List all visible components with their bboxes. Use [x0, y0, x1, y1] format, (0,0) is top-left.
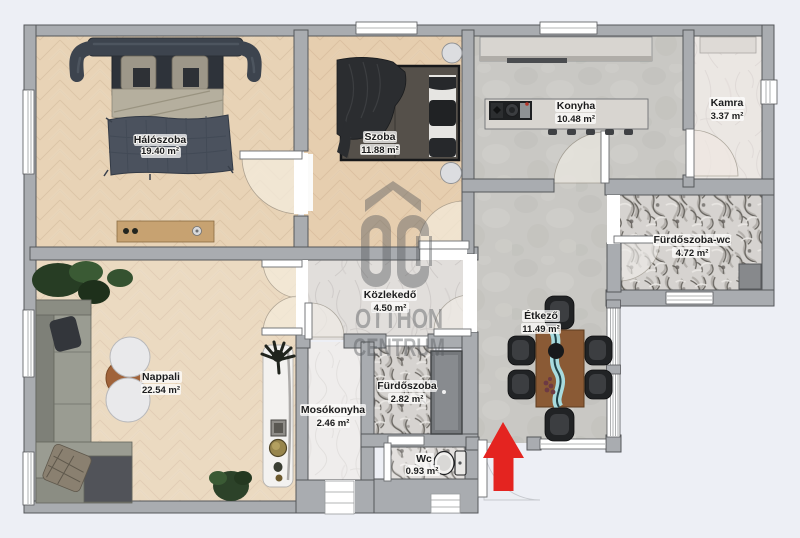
svg-text:19.40 m²: 19.40 m² [141, 146, 179, 157]
svg-text:Wc: Wc [416, 453, 432, 465]
svg-text:2.82 m²: 2.82 m² [391, 394, 424, 405]
svg-text:Szoba: Szoba [365, 131, 396, 143]
svg-text:Kamra: Kamra [711, 97, 744, 109]
svg-text:11.88 m²: 11.88 m² [361, 145, 399, 156]
svg-text:2.46 m²: 2.46 m² [317, 418, 350, 429]
svg-text:Étkező: Étkező [524, 309, 558, 322]
svg-text:Mosókonyha: Mosókonyha [301, 404, 365, 416]
svg-text:CENTRUM: CENTRUM [353, 334, 445, 362]
svg-text:22.54 m²: 22.54 m² [142, 385, 180, 396]
svg-text:4.50 m²: 4.50 m² [374, 303, 407, 314]
svg-text:Konyha: Konyha [557, 100, 596, 112]
svg-text:3.37 m²: 3.37 m² [711, 111, 744, 122]
svg-text:Hálószoba: Hálószoba [134, 134, 187, 146]
svg-text:Fürdőszoba: Fürdőszoba [377, 380, 437, 392]
svg-text:Közlekedő: Közlekedő [364, 289, 417, 301]
svg-text:Nappali: Nappali [142, 371, 180, 383]
svg-text:Fürdőszoba-wc: Fürdőszoba-wc [653, 234, 730, 246]
svg-text:11.49 m²: 11.49 m² [522, 324, 560, 335]
svg-text:0.93 m²: 0.93 m² [406, 466, 439, 477]
svg-text:10.48 m²: 10.48 m² [557, 114, 595, 125]
svg-text:4.72 m²: 4.72 m² [676, 248, 709, 259]
